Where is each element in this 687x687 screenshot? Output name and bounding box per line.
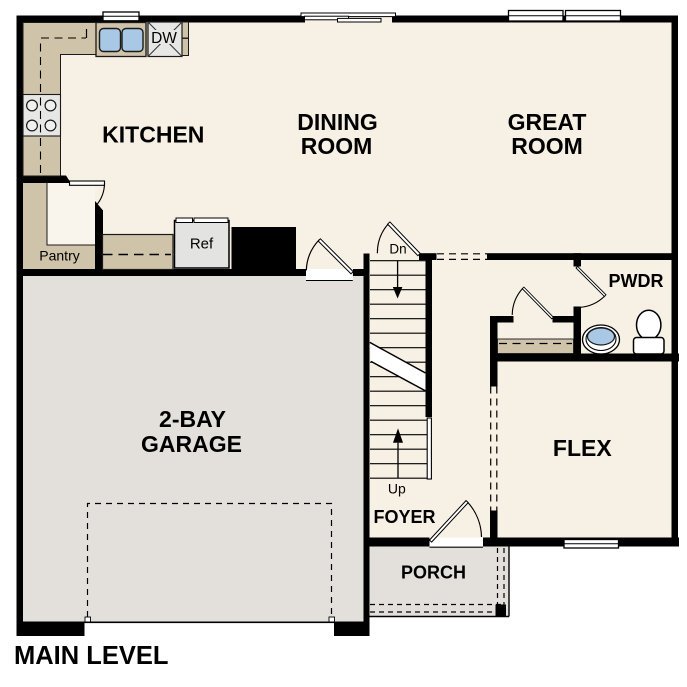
svg-text:FLEX: FLEX — [553, 435, 612, 461]
svg-text:KITCHEN: KITCHEN — [102, 122, 204, 148]
svg-text:Pantry: Pantry — [39, 248, 79, 264]
svg-text:Ref: Ref — [190, 236, 214, 253]
svg-text:PWDR: PWDR — [609, 271, 664, 291]
svg-text:MAIN LEVEL: MAIN LEVEL — [14, 642, 168, 670]
svg-text:ROOM: ROOM — [301, 133, 373, 159]
svg-text:2-BAY: 2-BAY — [159, 406, 226, 432]
svg-text:Dn: Dn — [389, 242, 406, 257]
svg-text:GREAT: GREAT — [508, 109, 587, 135]
svg-text:DINING: DINING — [297, 109, 378, 135]
svg-text:DW: DW — [151, 30, 177, 47]
svg-text:FOYER: FOYER — [373, 507, 435, 527]
svg-text:ROOM: ROOM — [511, 133, 583, 159]
svg-text:Up: Up — [388, 481, 406, 497]
svg-text:GARAGE: GARAGE — [141, 431, 242, 457]
svg-text:PORCH: PORCH — [401, 563, 466, 583]
